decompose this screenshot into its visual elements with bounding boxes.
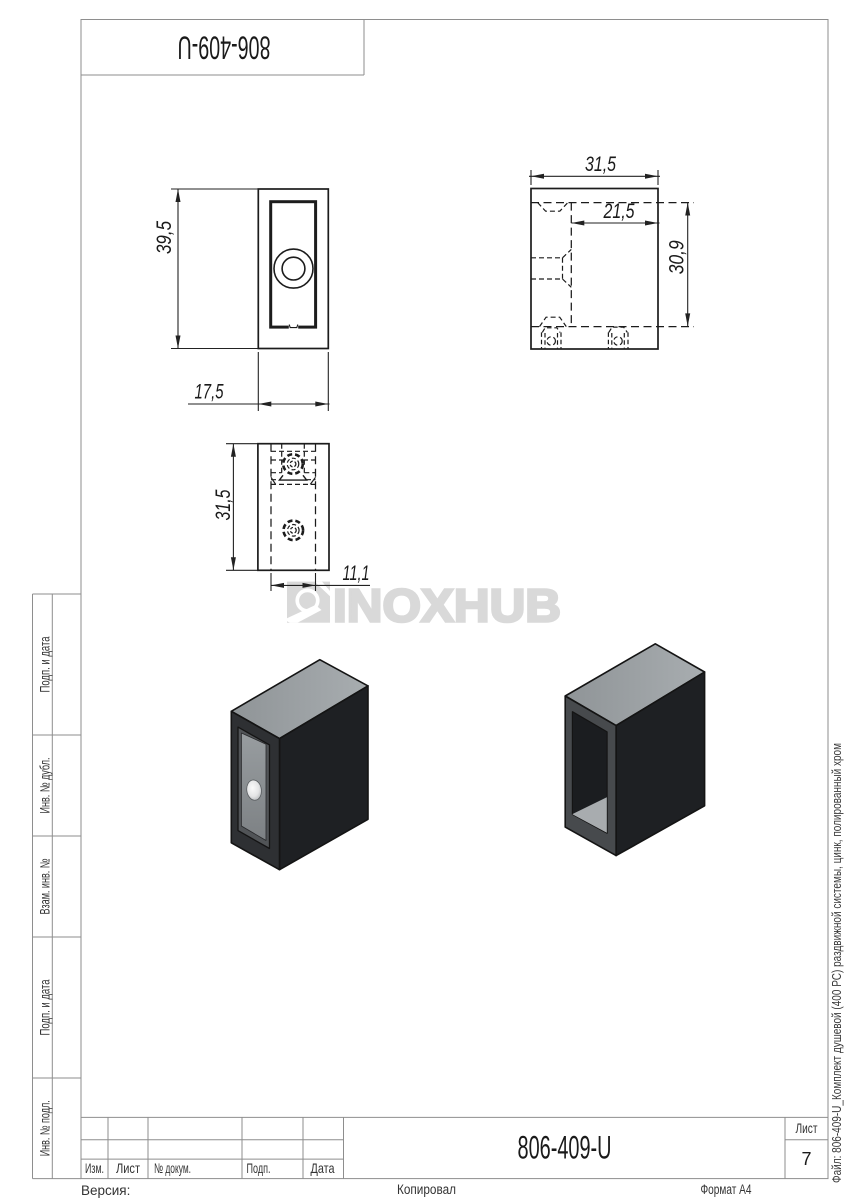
- svg-text:806-409-U: 806-409-U: [518, 1130, 612, 1166]
- svg-text:Файл: 806-409-U_Комплект душев: Файл: 806-409-U_Комплект душевой (400 РС…: [829, 743, 844, 1183]
- svg-text:11,1: 11,1: [343, 562, 370, 585]
- svg-text:Версия:: Версия:: [81, 1183, 130, 1198]
- svg-text:7: 7: [801, 1149, 811, 1169]
- svg-text:31,5: 31,5: [212, 489, 235, 520]
- svg-text:17,5: 17,5: [195, 381, 224, 404]
- svg-text:Инв. № подл.: Инв. № подл.: [38, 1100, 53, 1156]
- svg-text:806-409-U: 806-409-U: [178, 30, 271, 66]
- svg-text:31,5: 31,5: [585, 153, 616, 176]
- svg-text:Взам. инв. №: Взам. инв. №: [38, 859, 53, 915]
- svg-text:Формат А4: Формат А4: [701, 1182, 752, 1197]
- svg-text:39,5: 39,5: [153, 221, 176, 254]
- svg-text:Изм.: Изм.: [85, 1160, 104, 1176]
- svg-text:Инв. № дубл.: Инв. № дубл.: [38, 758, 53, 814]
- svg-text:Лист: Лист: [116, 1160, 140, 1176]
- svg-text:№ докум.: № докум.: [154, 1160, 191, 1176]
- svg-text:Подп. и дата: Подп. и дата: [38, 636, 53, 692]
- svg-text:Копировал: Копировал: [397, 1182, 456, 1197]
- svg-text:21,5: 21,5: [603, 200, 635, 223]
- svg-text:Дата: Дата: [311, 1160, 335, 1176]
- svg-text:Подп. и дата: Подп. и дата: [38, 979, 53, 1035]
- svg-text:INOXHUB: INOXHUB: [333, 580, 561, 632]
- svg-text:Подп.: Подп.: [247, 1160, 271, 1176]
- svg-text:30,9: 30,9: [666, 240, 689, 274]
- svg-text:Лист: Лист: [796, 1120, 818, 1136]
